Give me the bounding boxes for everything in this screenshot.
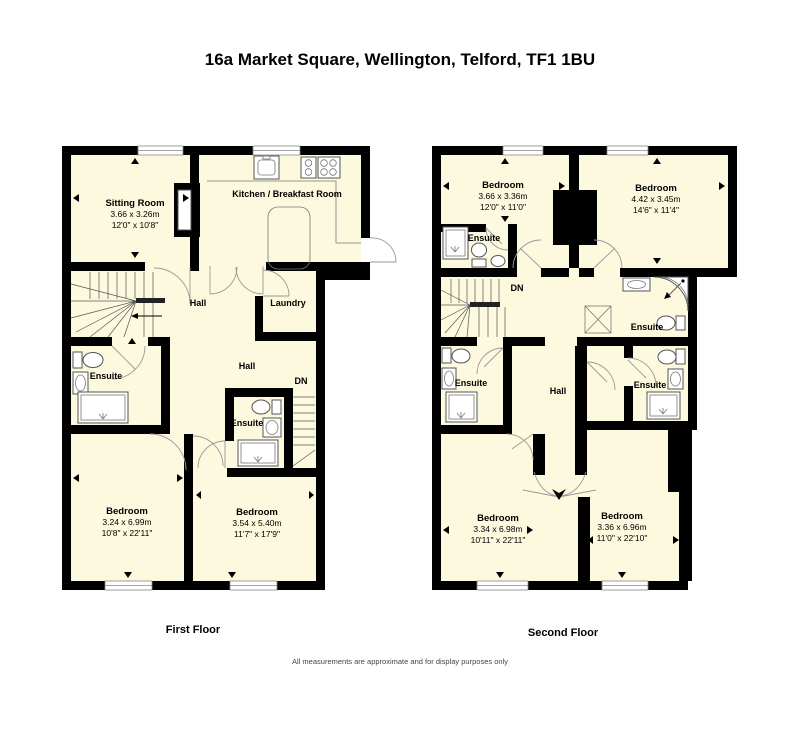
sitting-room-name: Sitting Room: [105, 198, 164, 209]
svg-text:12'0" x 11'0": 12'0" x 11'0": [480, 202, 526, 212]
ensuite-left-name: Ensuite: [90, 371, 123, 381]
bedroom-top-left-name: Bedroom: [482, 180, 524, 191]
svg-text:3.34 x 6.98m: 3.34 x 6.98m: [473, 524, 522, 534]
bedroom-divider-wall: [578, 497, 590, 581]
laundry-name: Laundry: [270, 298, 306, 308]
bedroom-left-name: Bedroom: [106, 506, 148, 517]
dn-label: DN: [511, 283, 524, 293]
shower-icon: [238, 440, 278, 466]
toilet-icon: [442, 348, 470, 363]
sitting-room-imperial: 12'0" x 10'8": [112, 220, 159, 230]
hall-upper-name: Hall: [190, 298, 207, 308]
second-floor-label: Second Floor: [463, 627, 663, 639]
first-floor-label: First Floor: [93, 624, 293, 636]
svg-text:3.54 x 5.40m: 3.54 x 5.40m: [232, 518, 281, 528]
ensuite-middle-name: Ensuite: [231, 418, 264, 428]
bedroom-top-right-name: Bedroom: [635, 183, 677, 194]
svg-text:4.42 x 3.45m: 4.42 x 3.45m: [631, 194, 680, 204]
bathroom-sink-icon: [668, 369, 683, 389]
toilet-icon: [472, 243, 487, 267]
svg-text:11'0" x 22'10": 11'0" x 22'10": [597, 533, 648, 543]
hall-name: Hall: [550, 386, 567, 396]
svg-text:10'8" x 22'11": 10'8" x 22'11": [102, 528, 153, 538]
toilet-icon: [658, 349, 685, 364]
toilet-icon: [73, 352, 103, 368]
kitchen-name: Kitchen / Breakfast Room: [232, 189, 342, 199]
disclaimer-text: All measurements are approximate and for…: [0, 657, 800, 666]
bedroom-bottom-left-name: Bedroom: [477, 513, 519, 524]
bathroom-sink-icon: [491, 256, 505, 267]
ensuite-mid-left-name: Ensuite: [455, 378, 488, 388]
ensuite-top-left-name: Ensuite: [468, 233, 501, 243]
bedroom-right-name: Bedroom: [236, 507, 278, 518]
ensuite-top-right-name: Ensuite: [631, 322, 664, 332]
stove-icon: [301, 157, 340, 178]
shower-icon: [647, 392, 680, 419]
bedroom-divider-wall: [184, 434, 193, 581]
first-floor-plan: Sitting Room 3.66 x 3.26m 12'0" x 10'8" …: [62, 146, 396, 590]
shower-icon: [443, 227, 468, 259]
second-floor-plan: Bedroom 3.66 x 3.36m 12'0" x 11'0" Bedro…: [432, 146, 737, 590]
wall: [62, 146, 370, 155]
svg-text:11'7" x 17'9": 11'7" x 17'9": [234, 529, 280, 539]
shower-icon: [78, 392, 128, 423]
bathroom-sink-icon: [73, 372, 88, 394]
toilet-icon: [252, 400, 281, 414]
chimney-block: [553, 190, 597, 245]
svg-text:3.24 x 6.99m: 3.24 x 6.99m: [102, 517, 151, 527]
svg-text:3.36 x 6.96m: 3.36 x 6.96m: [597, 522, 646, 532]
ensuite-mid-right-name: Ensuite: [634, 380, 667, 390]
bathroom-sink-icon: [263, 418, 281, 437]
hall-lower-name: Hall: [239, 361, 256, 371]
dn-label: DN: [295, 376, 308, 386]
bathroom-sink-icon: [623, 278, 650, 291]
bedroom-bottom-right-name: Bedroom: [601, 511, 643, 522]
svg-text:3.66 x 3.36m: 3.66 x 3.36m: [478, 191, 527, 201]
kitchen-sink-icon: [254, 156, 279, 179]
svg-text:10'11" x 22'11": 10'11" x 22'11": [471, 535, 526, 545]
svg-text:14'6" x 11'4": 14'6" x 11'4": [633, 205, 679, 215]
shower-icon: [446, 392, 477, 422]
sitting-room-metric: 3.66 x 3.26m: [110, 209, 159, 219]
